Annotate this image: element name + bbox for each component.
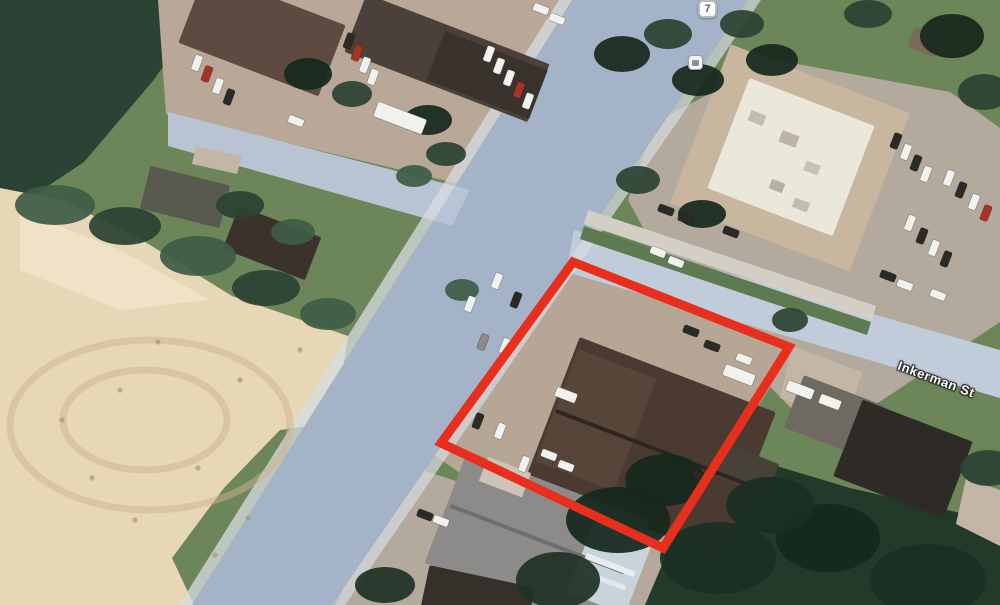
tree-canopy — [160, 236, 236, 276]
sand-debris — [297, 347, 302, 352]
transit-glyph — [692, 60, 699, 66]
tree-canopy — [271, 219, 315, 245]
tree-canopy — [300, 298, 356, 330]
tree-canopy — [355, 567, 415, 603]
sand-debris — [245, 515, 250, 520]
tree-canopy — [844, 0, 892, 28]
highway-shield-number: 7 — [704, 4, 710, 15]
tree-canopy — [396, 165, 432, 187]
satellite-imagery — [0, 0, 1000, 605]
tree-canopy — [720, 10, 764, 38]
sand-debris — [117, 387, 122, 392]
sand-debris — [132, 517, 137, 522]
tree-canopy — [772, 308, 808, 332]
tree-canopy — [726, 477, 814, 533]
sand-debris — [195, 465, 200, 470]
tree-canopy — [678, 200, 726, 228]
tree-canopy — [332, 81, 372, 107]
tree-canopy — [284, 58, 332, 90]
tree-canopy — [920, 14, 984, 58]
tree-canopy — [616, 166, 660, 194]
transit-stop-icon — [688, 55, 703, 70]
sand-debris — [155, 339, 160, 344]
tree-canopy — [232, 270, 300, 306]
sand-debris — [89, 475, 94, 480]
tree-canopy — [594, 36, 650, 72]
satellite-map-view[interactable]: 7 Inkerman St — [0, 0, 1000, 605]
tree-canopy — [216, 191, 264, 219]
tree-canopy — [15, 185, 95, 225]
tree-canopy — [746, 44, 798, 76]
sand-debris — [59, 417, 64, 422]
tree-canopy — [426, 142, 466, 166]
sand-debris — [237, 377, 242, 382]
sand-debris — [212, 552, 217, 557]
highway-7-shield-icon: 7 — [698, 0, 717, 18]
tree-canopy — [89, 207, 161, 245]
tree-canopy — [644, 19, 692, 49]
